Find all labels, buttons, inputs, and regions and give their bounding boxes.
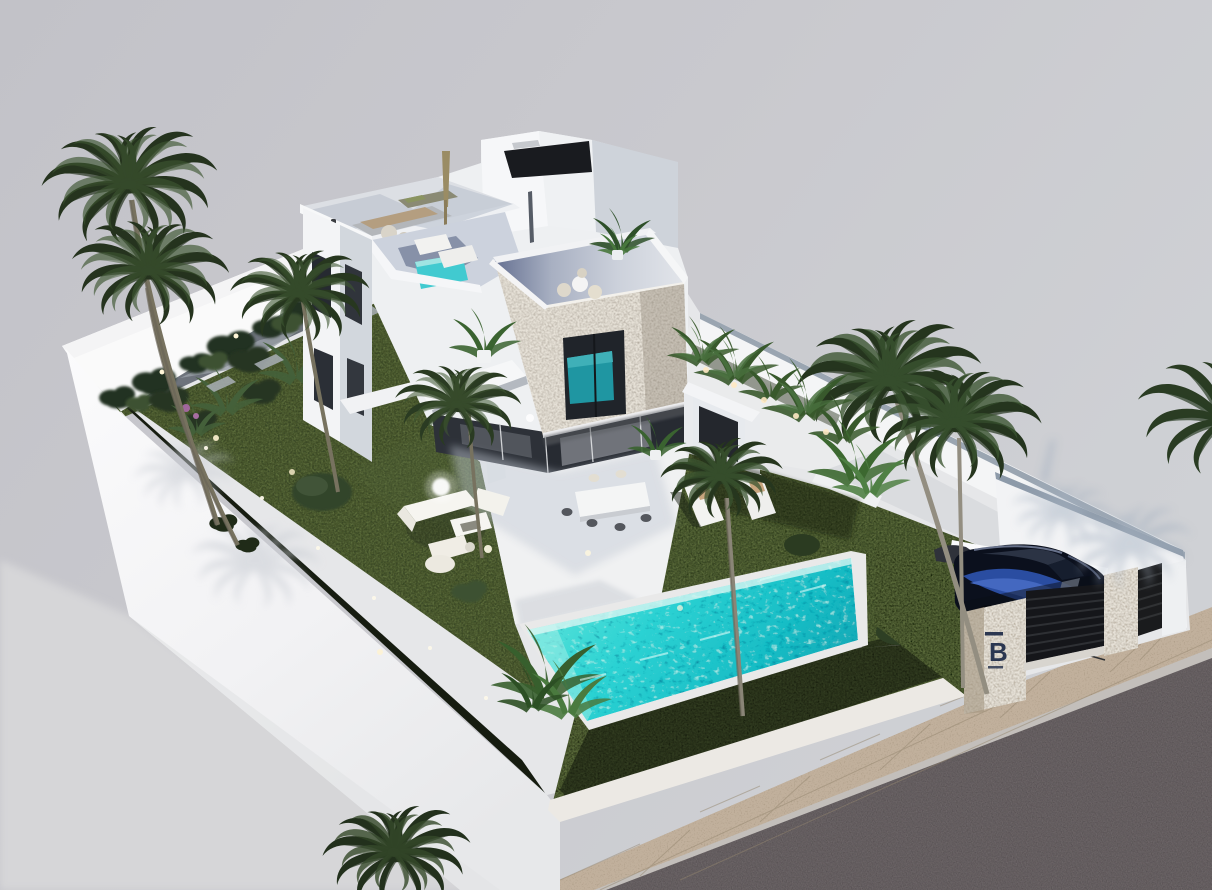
svg-text:B: B	[989, 637, 1008, 667]
